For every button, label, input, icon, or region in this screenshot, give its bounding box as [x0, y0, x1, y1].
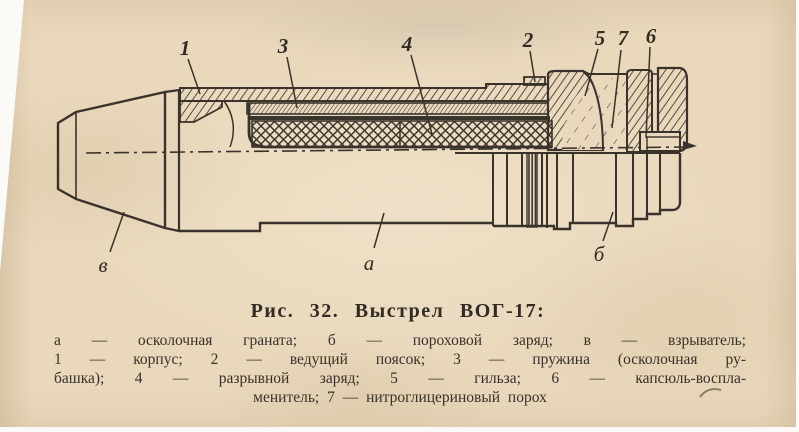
figure-caption: Рис. 32. Выстрел ВОГ-17: [0, 300, 796, 323]
callout-7: 7 [618, 26, 630, 50]
centerline-arrowhead [683, 141, 697, 150]
legend-line-2: 1 — корпус; 2 — ведущий поясок; 3 — пруж… [54, 350, 746, 369]
callout-5: 5 [595, 26, 606, 50]
label-v-fuze: в [98, 253, 107, 277]
spring-jacket-section [247, 103, 550, 118]
vog17-cross-section-diagram: 1 3 4 2 5 7 6 в а б [0, 0, 796, 300]
callout-4: 4 [401, 32, 413, 56]
callout-numbers: 1 3 4 2 5 7 6 [180, 24, 657, 60]
label-a-grenade: а [364, 251, 375, 275]
label-b-charge: б [594, 242, 606, 266]
case-exterior-ribs [493, 153, 680, 229]
scan-mark [694, 381, 728, 403]
fuze-nose-cone [58, 92, 165, 228]
legend-line-1: а — осколочная граната; б — пороховой за… [54, 331, 746, 350]
scanned-page-paper: 1 3 4 2 5 7 6 в а б Рис. 32. Выстрел ВОГ… [0, 0, 796, 427]
callout-6: 6 [646, 24, 657, 48]
callout-3: 3 [277, 34, 289, 58]
figure-legend: а — осколочная граната; б — пороховой за… [54, 331, 746, 407]
callout-2: 2 [522, 28, 534, 52]
legend-line-4: менитель; 7 — нитроглицериновый порох [54, 388, 746, 407]
fuze-base-ring [165, 90, 179, 231]
part-letter-labels: в а б [98, 242, 605, 277]
legend-line-3: башка); 4 — разрывной заряд; 5 — гильза;… [54, 369, 746, 388]
grenade-body-exterior [179, 153, 680, 231]
callout-1: 1 [180, 36, 191, 60]
